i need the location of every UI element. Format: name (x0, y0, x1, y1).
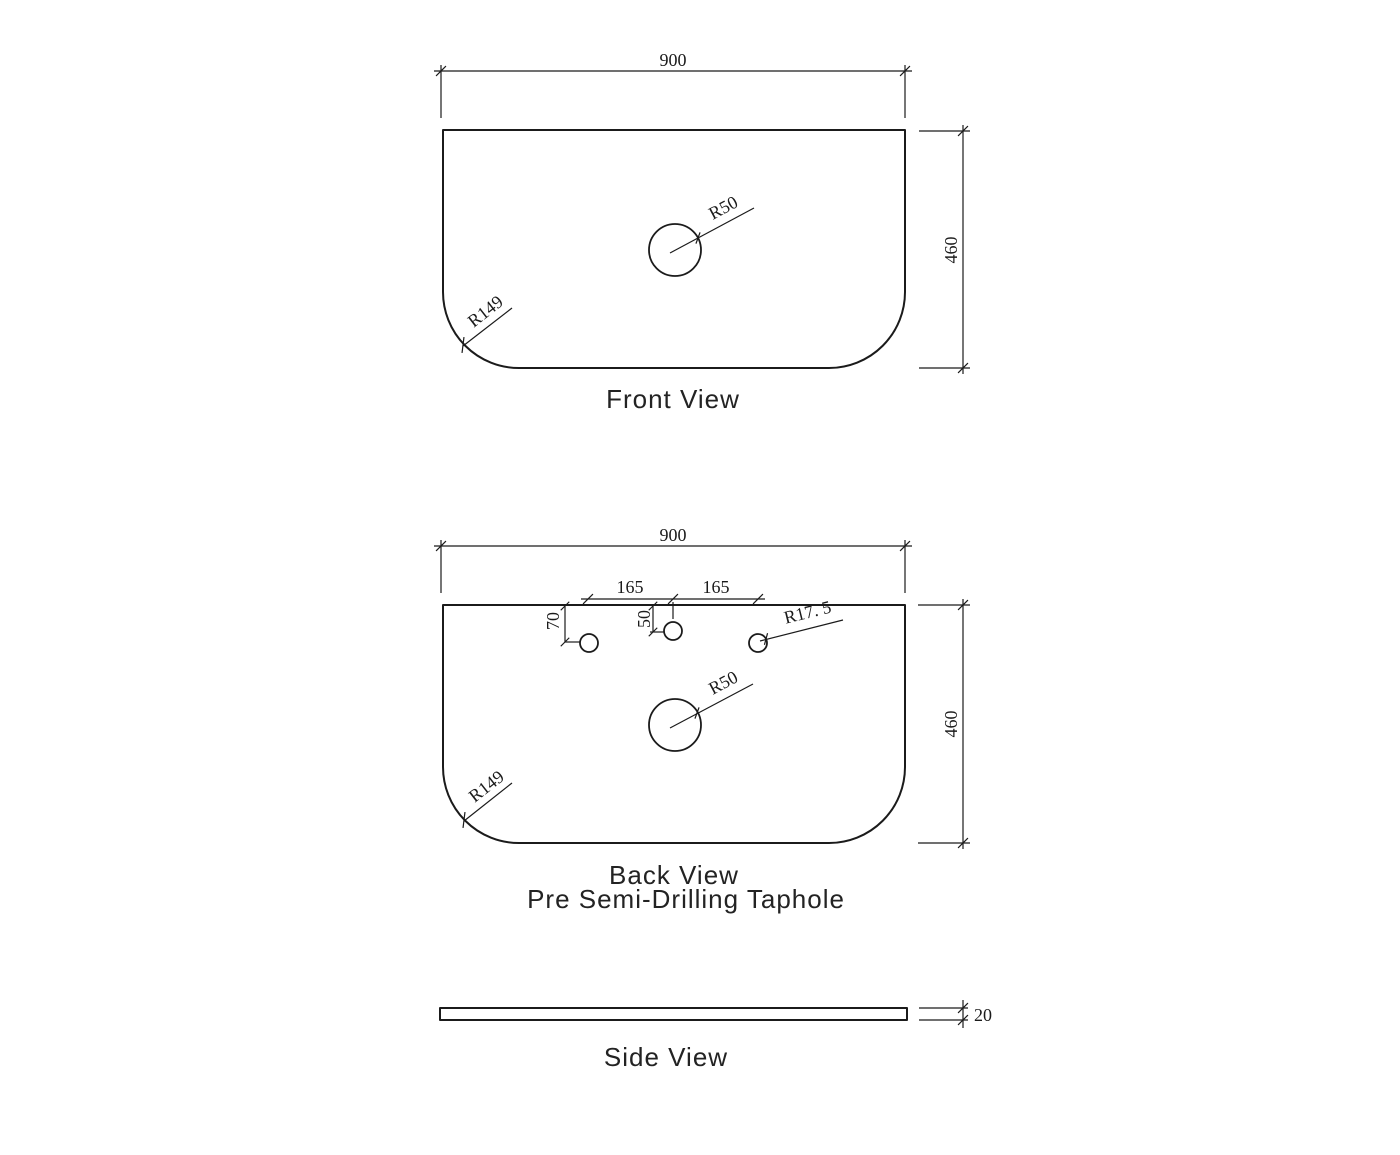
back-leader-r17-5: R17. 5 (760, 597, 843, 645)
back-r149-text: R149 (465, 766, 508, 806)
front-outline (443, 130, 905, 368)
back-dim-offset-70: 70 (543, 602, 580, 646)
drawing-sheet: 900 460 R50 R149 Front View (0, 0, 1400, 1155)
front-height-dim-text: 460 (941, 237, 961, 264)
taphole-center (664, 622, 682, 640)
back-dim-width: 900 (434, 525, 912, 593)
thickness-dim-text: 20 (974, 1005, 992, 1025)
back-width-dim-text: 900 (660, 525, 687, 545)
back-view-sublabel: Pre Semi-Drilling Taphole (527, 884, 845, 914)
front-dim-width: 900 (434, 50, 912, 118)
taphole-radius-text: R17. 5 (782, 597, 833, 628)
back-dim-height: 460 (918, 599, 970, 849)
front-view-label: Front View (606, 384, 740, 414)
side-outline (440, 1008, 907, 1020)
front-dim-height: 460 (919, 125, 970, 374)
offset-70-text: 70 (543, 612, 563, 630)
front-view: 900 460 R50 R149 Front View (434, 50, 970, 414)
side-view: 20 Side View (440, 1000, 992, 1072)
taphole-right (749, 634, 767, 652)
front-leader-r50: R50 (670, 192, 754, 253)
back-height-dim-text: 460 (941, 711, 961, 738)
tap-spacing-right-text: 165 (703, 577, 730, 597)
taphole-left (580, 634, 598, 652)
offset-50-text: 50 (634, 610, 654, 628)
back-leader-r50: R50 (670, 667, 753, 728)
technical-drawing-canvas: 900 460 R50 R149 Front View (0, 0, 1400, 1155)
tap-spacing-left-text: 165 (617, 577, 644, 597)
back-leader-r149: R149 (463, 766, 512, 828)
back-dim-tap-spacing: 165 165 (581, 577, 765, 619)
side-view-label: Side View (604, 1042, 728, 1072)
back-dim-offset-50: 50 (634, 602, 664, 636)
side-dim-thickness: 20 (919, 1000, 992, 1028)
front-width-dim-text: 900 (660, 50, 687, 70)
front-r50-text: R50 (705, 192, 741, 224)
front-leader-r149: R149 (462, 291, 512, 353)
front-r149-text: R149 (464, 291, 507, 331)
back-view: 900 460 165 165 70 (434, 525, 970, 914)
